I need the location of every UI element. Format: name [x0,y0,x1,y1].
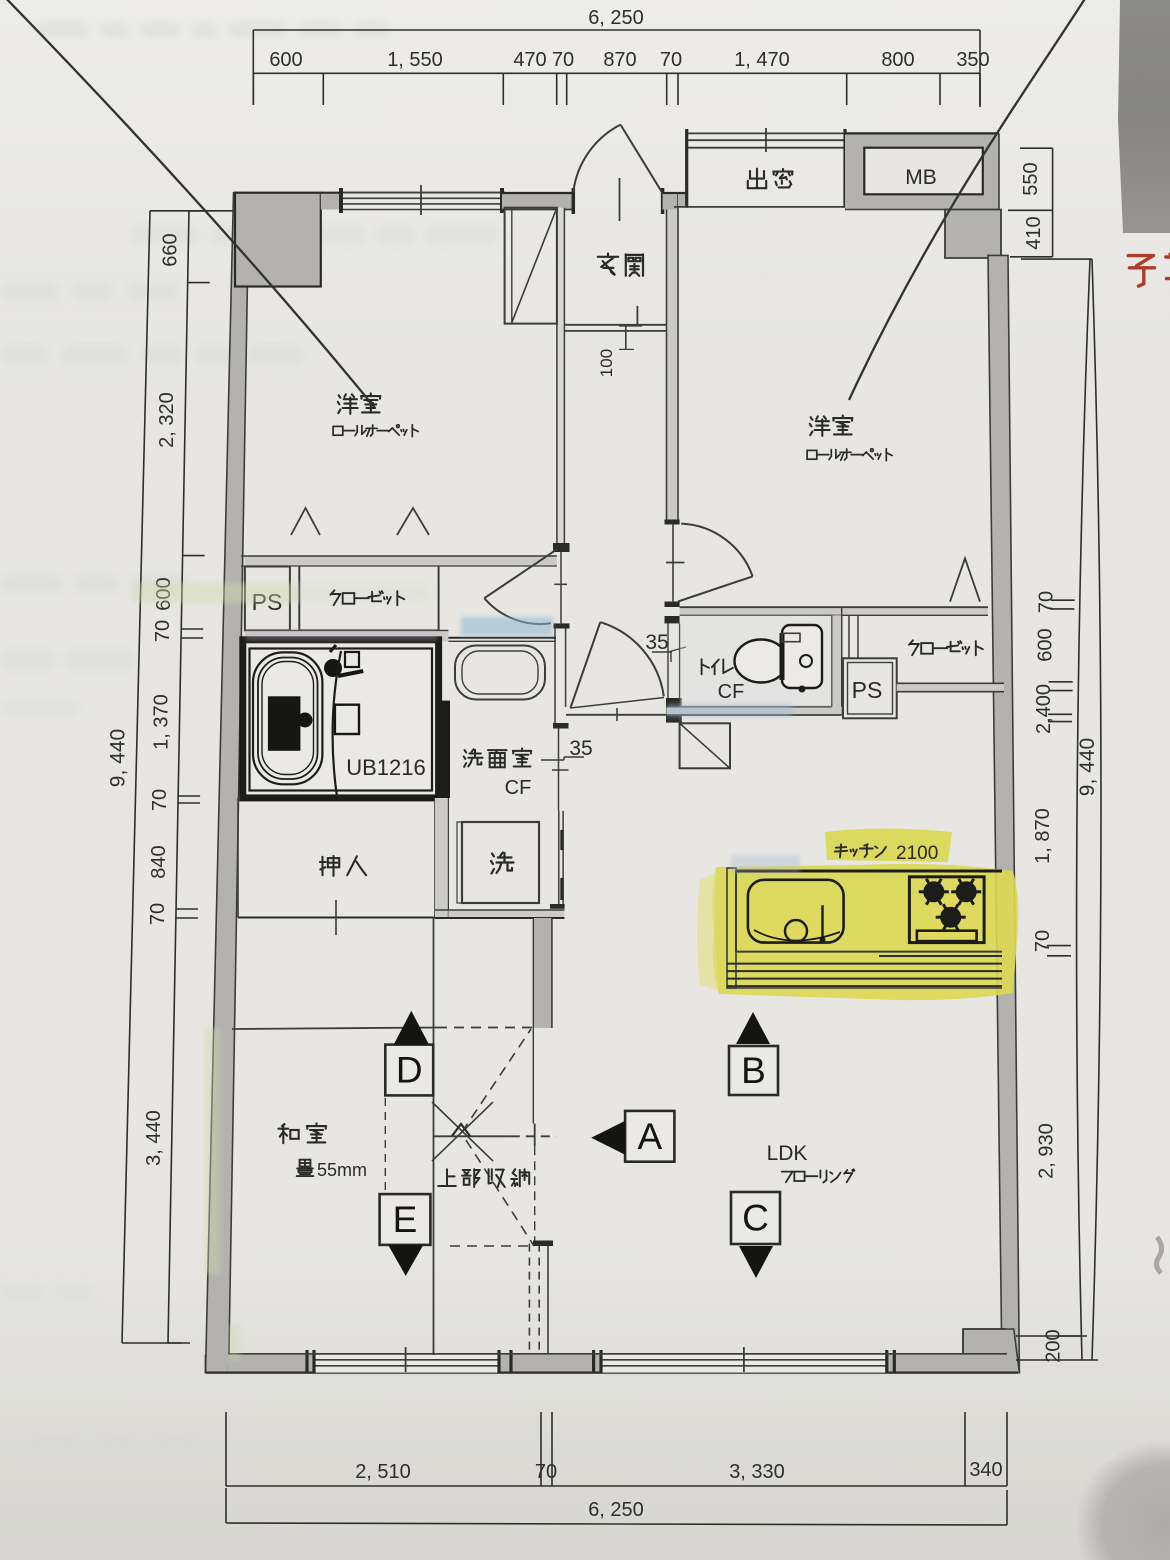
svg-text:9, 440: 9, 440 [1076,738,1099,796]
svg-text:2, 930: 2, 930 [1035,1123,1057,1179]
svg-text:UB1216: UB1216 [346,755,426,780]
svg-text:100: 100 [597,349,616,377]
svg-text:800: 800 [881,49,914,71]
svg-text:3, 330: 3, 330 [729,1461,785,1483]
svg-text:CF: CF [505,777,532,799]
svg-text:2, 510: 2, 510 [355,1461,411,1483]
svg-text:9, 440: 9, 440 [107,729,130,787]
svg-text:660: 660 [159,233,181,266]
svg-text:70: 70 [147,903,169,925]
svg-text:70: 70 [660,49,682,71]
svg-text:70: 70 [152,620,174,642]
svg-text:55mm: 55mm [317,1160,367,1180]
svg-text:340: 340 [969,1459,1002,1481]
svg-text:350: 350 [956,49,989,71]
svg-text:CF: CF [718,681,745,703]
svg-text:6, 250: 6, 250 [588,7,644,29]
svg-text:550: 550 [1020,162,1042,195]
svg-text:840: 840 [148,845,170,878]
svg-text:LDK: LDK [767,1142,808,1165]
svg-text:200: 200 [1042,1329,1064,1362]
svg-text:600: 600 [269,49,302,71]
svg-text:70: 70 [1036,591,1058,613]
svg-text:70: 70 [1032,930,1054,952]
svg-text:2, 320: 2, 320 [156,392,178,448]
svg-text:MB: MB [905,166,937,189]
svg-text:1, 470: 1, 470 [734,49,790,71]
svg-text:600: 600 [1035,628,1057,661]
svg-text:1, 370: 1, 370 [151,694,173,750]
svg-text:PS: PS [852,677,883,703]
svg-text:870: 870 [603,49,636,71]
svg-text:A: A [637,1116,662,1157]
svg-text:35: 35 [645,631,668,654]
svg-text:1, 550: 1, 550 [387,49,443,71]
svg-text:470: 470 [513,49,546,71]
svg-text:6, 250: 6, 250 [588,1499,644,1521]
svg-text:E: E [393,1199,418,1240]
svg-text:70: 70 [552,49,574,71]
svg-text:410: 410 [1023,216,1045,249]
svg-text:B: B [741,1050,766,1091]
svg-text:1, 870: 1, 870 [1032,808,1054,864]
svg-text:3, 440: 3, 440 [143,1110,165,1166]
svg-text:C: C [742,1198,769,1239]
svg-text:70: 70 [149,789,171,811]
svg-text:70: 70 [535,1461,557,1483]
svg-text:2,400: 2,400 [1033,684,1055,734]
svg-text:D: D [396,1050,423,1091]
svg-text:2100: 2100 [896,843,938,864]
